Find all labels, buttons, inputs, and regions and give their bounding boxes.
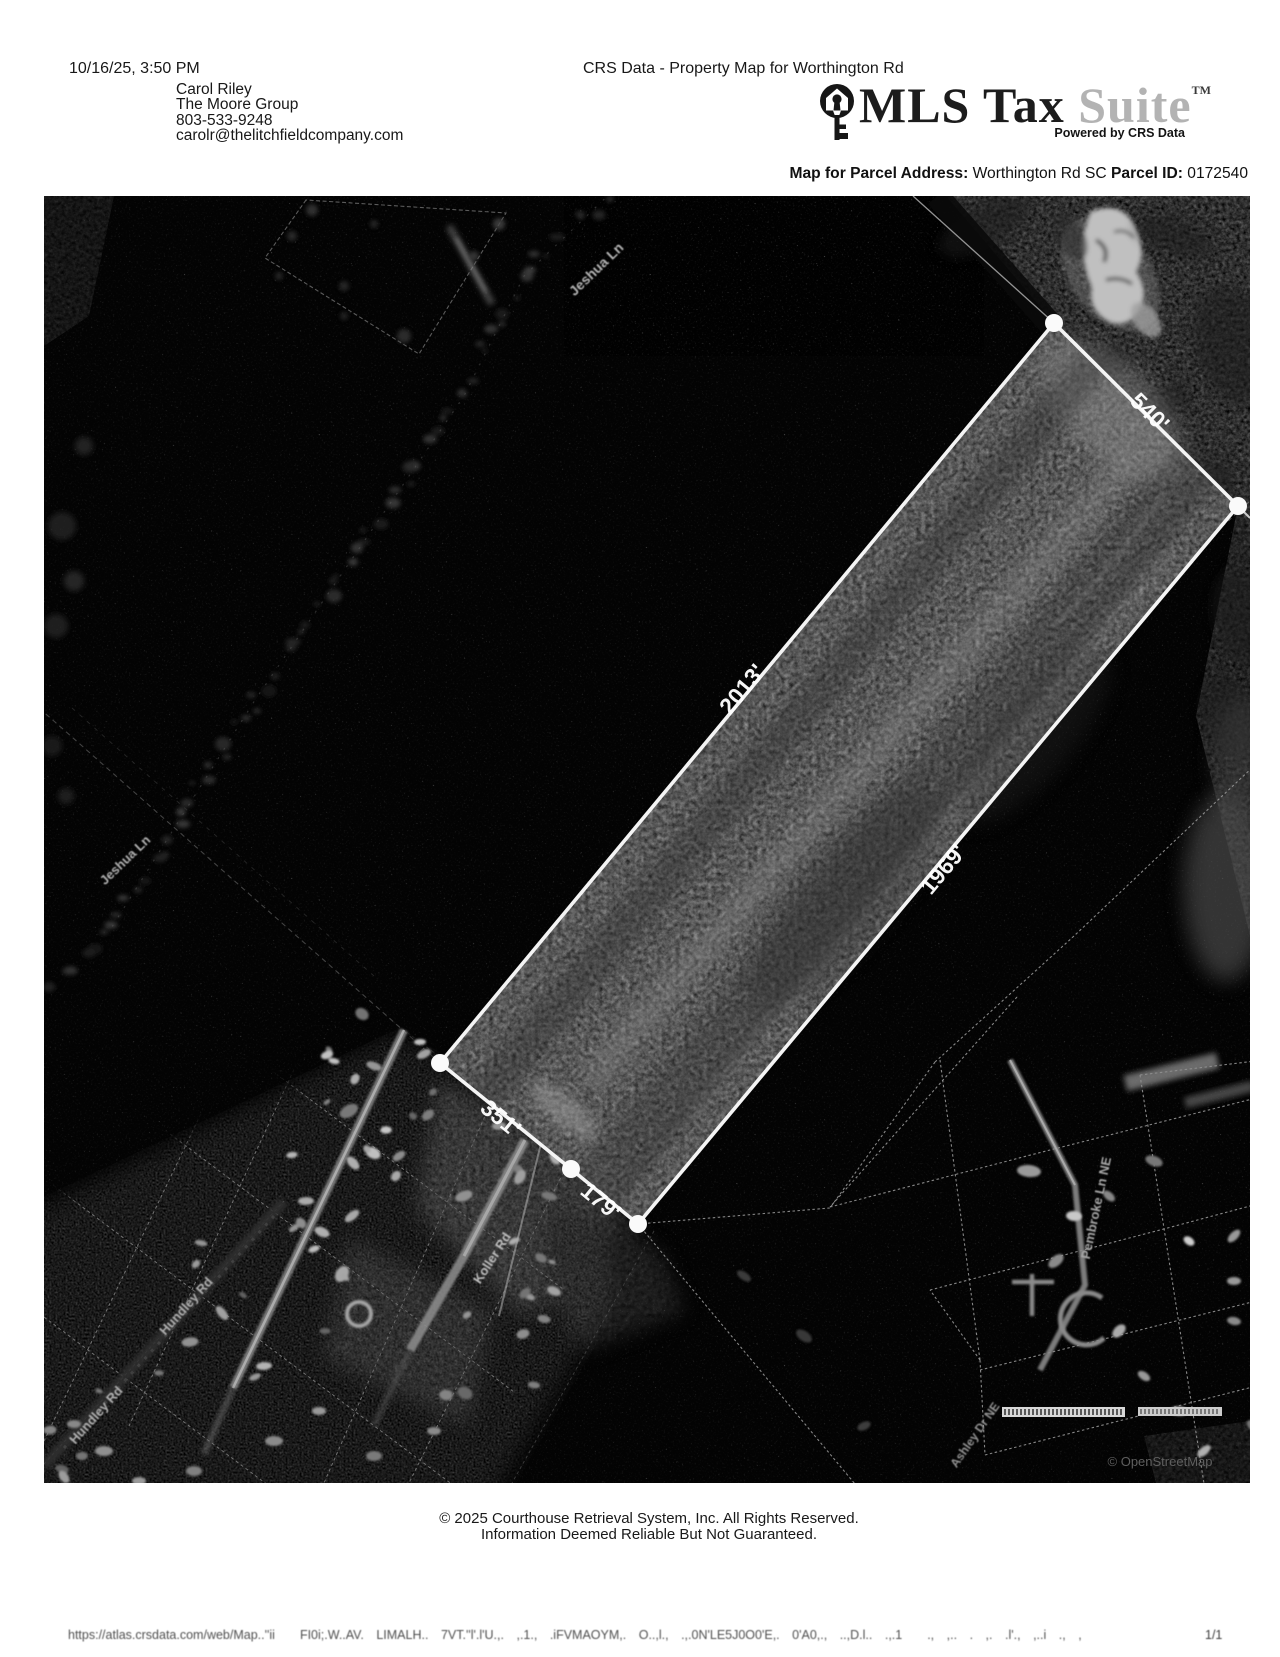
svg-text:© OpenStreetMap: © OpenStreetMap: [1108, 1454, 1213, 1469]
